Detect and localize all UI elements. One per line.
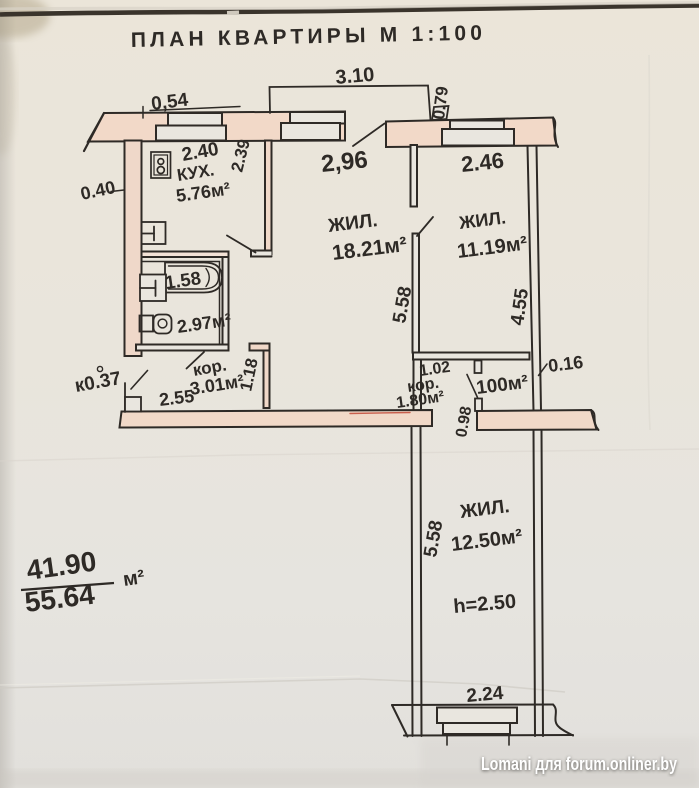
svg-text:2.55: 2.55 bbox=[158, 386, 195, 410]
svg-text:0.79: 0.79 bbox=[429, 85, 452, 120]
svg-text:3.10: 3.10 bbox=[335, 64, 376, 89]
svg-text:м²: м² bbox=[122, 566, 147, 591]
svg-text:2.46: 2.46 bbox=[460, 148, 505, 177]
svg-text:2,96: 2,96 bbox=[320, 146, 369, 178]
svg-text:0.16: 0.16 bbox=[547, 352, 584, 376]
svg-text:Lomani для forum.onliner.by: Lomani для forum.onliner.by bbox=[481, 754, 677, 774]
svg-text:2.24: 2.24 bbox=[466, 683, 505, 707]
